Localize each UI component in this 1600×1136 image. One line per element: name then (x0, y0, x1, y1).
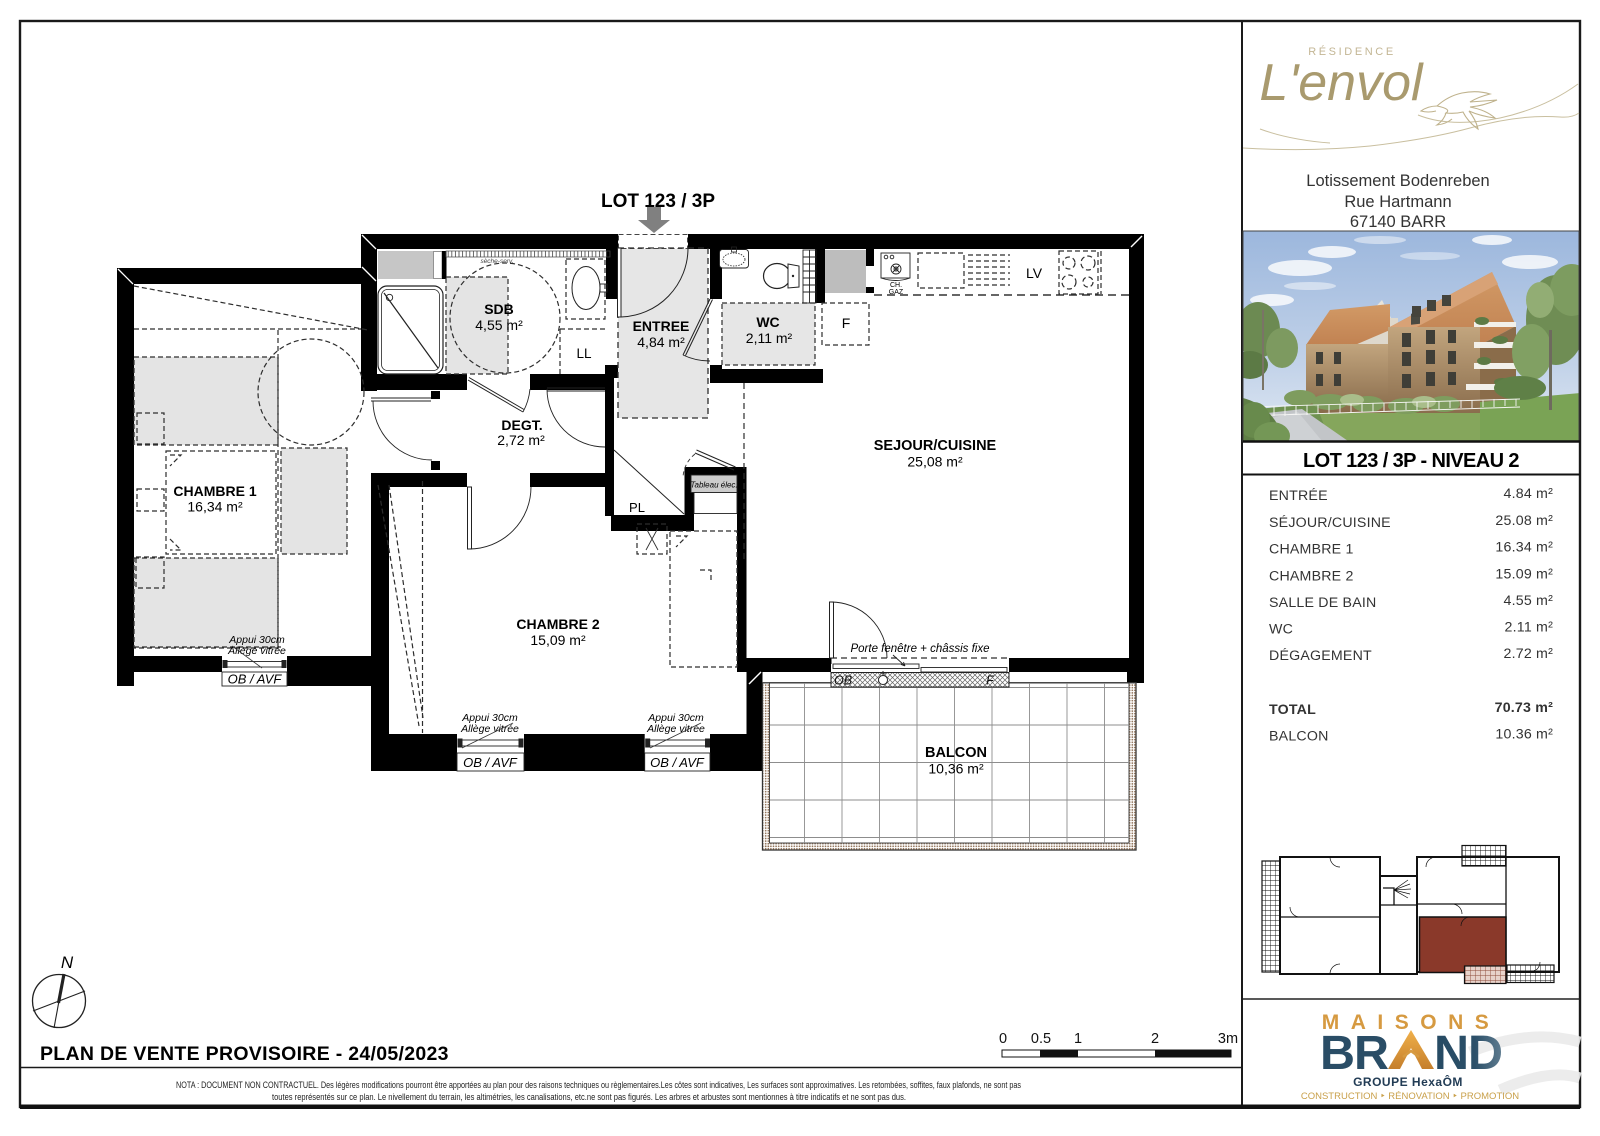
svg-text:BALCON: BALCON (925, 745, 987, 761)
svg-text:3m: 3m (1218, 1031, 1238, 1047)
svg-text:Rue Hartmann: Rue Hartmann (1344, 193, 1451, 211)
svg-text:Porte fenêtre + châssis fixe: Porte fenêtre + châssis fixe (850, 643, 989, 655)
svg-text:2,11 m²: 2,11 m² (746, 330, 793, 346)
svg-text:4,84 m²: 4,84 m² (637, 334, 685, 350)
svg-text:PL: PL (629, 500, 645, 515)
svg-text:0.5: 0.5 (1031, 1031, 1051, 1047)
svg-text:10.36 m²: 10.36 m² (1495, 727, 1553, 743)
svg-text:25,08 m²: 25,08 m² (907, 454, 963, 470)
svg-text:Lotissement Bodenreben: Lotissement Bodenreben (1306, 172, 1489, 190)
svg-text:2,72 m²: 2,72 m² (497, 432, 545, 448)
svg-text:PLAN DE VENTE PROVISOIRE - 24/: PLAN DE VENTE PROVISOIRE - 24/05/2023 (40, 1043, 449, 1065)
svg-text:toutes représentés sur ce plan: toutes représentés sur ce plan. Le nivel… (272, 1092, 906, 1103)
svg-text:OB / AVF: OB / AVF (228, 672, 283, 687)
svg-text:DEGT.: DEGT. (501, 417, 542, 433)
svg-text:WC: WC (756, 314, 779, 330)
svg-text:LL: LL (576, 346, 592, 361)
svg-text:L'envol: L'envol (1259, 54, 1424, 112)
svg-text:67140 BARR: 67140 BARR (1350, 213, 1446, 231)
svg-text:CHAMBRE 2: CHAMBRE 2 (516, 616, 599, 632)
svg-text:ENTREE: ENTREE (633, 318, 690, 334)
svg-text:DÉGAGEMENT: DÉGAGEMENT (1269, 647, 1372, 664)
svg-text:CHAMBRE 2: CHAMBRE 2 (1269, 569, 1354, 585)
svg-text:2.11 m²: 2.11 m² (1505, 620, 1554, 636)
svg-text:OB / AVF: OB / AVF (463, 755, 518, 770)
svg-text:BALCON: BALCON (1269, 729, 1329, 745)
svg-text:70.73 m²: 70.73 m² (1495, 700, 1553, 716)
svg-text:LV: LV (1026, 265, 1043, 281)
svg-text:10,36 m²: 10,36 m² (928, 761, 984, 777)
svg-text:OB / AVF: OB / AVF (650, 755, 705, 770)
svg-text:SÉJOUR/CUISINE: SÉJOUR/CUISINE (1269, 514, 1391, 531)
svg-text:4.84 m²: 4.84 m² (1504, 486, 1554, 502)
svg-text:15.09 m²: 15.09 m² (1495, 567, 1553, 583)
svg-text:Allège vitrée: Allège vitrée (646, 723, 705, 735)
svg-text:25.08 m²: 25.08 m² (1495, 513, 1553, 529)
svg-text:16.34 m²: 16.34 m² (1495, 540, 1553, 556)
svg-text:SEJOUR/CUISINE: SEJOUR/CUISINE (874, 438, 997, 454)
svg-text:SDB: SDB (484, 301, 514, 317)
svg-text:GROUPE HexaÔM: GROUPE HexaÔM (1353, 1074, 1463, 1089)
svg-text:4,55 m²: 4,55 m² (475, 317, 523, 333)
svg-text:OB: OB (834, 674, 852, 688)
svg-text:TOTAL: TOTAL (1269, 702, 1316, 718)
svg-text:15,09 m²: 15,09 m² (530, 632, 586, 648)
svg-text:NOTA : DOCUMENT NON CONTRACTUE: NOTA : DOCUMENT NON CONTRACTUEL. Des lég… (176, 1080, 1021, 1091)
svg-text:BR: BR (1320, 1026, 1389, 1080)
svg-text:CONSTRUCTION ‣ RÉNOVATION ‣ PR: CONSTRUCTION ‣ RÉNOVATION ‣ PROMOTION (1301, 1091, 1519, 1102)
svg-text:2: 2 (1151, 1031, 1159, 1047)
svg-text:ENTRÉE: ENTRÉE (1269, 487, 1328, 504)
svg-text:Tableau élec.: Tableau élec. (690, 481, 737, 490)
svg-text:WC: WC (1269, 622, 1293, 638)
svg-text:CHAMBRE 1: CHAMBRE 1 (173, 483, 256, 499)
svg-text:Allège vitrée: Allège vitrée (227, 645, 286, 657)
svg-text:N: N (61, 953, 74, 972)
svg-text:LOT 123 / 3P - NIVEAU 2: LOT 123 / 3P - NIVEAU 2 (1303, 450, 1519, 472)
svg-text:2.72 m²: 2.72 m² (1504, 646, 1554, 662)
svg-text:SALLE DE BAIN: SALLE DE BAIN (1269, 595, 1376, 611)
svg-text:0: 0 (999, 1031, 1007, 1047)
svg-text:ND: ND (1434, 1026, 1502, 1080)
svg-text:CH.: CH. (890, 282, 902, 289)
svg-text:F: F (842, 315, 851, 331)
svg-text:16,34 m²: 16,34 m² (187, 499, 243, 515)
svg-text:1: 1 (1074, 1031, 1082, 1047)
svg-text:4.55 m²: 4.55 m² (1504, 593, 1554, 609)
svg-text:LOT 123 / 3P: LOT 123 / 3P (601, 191, 715, 212)
svg-text:CHAMBRE 1: CHAMBRE 1 (1269, 542, 1354, 558)
